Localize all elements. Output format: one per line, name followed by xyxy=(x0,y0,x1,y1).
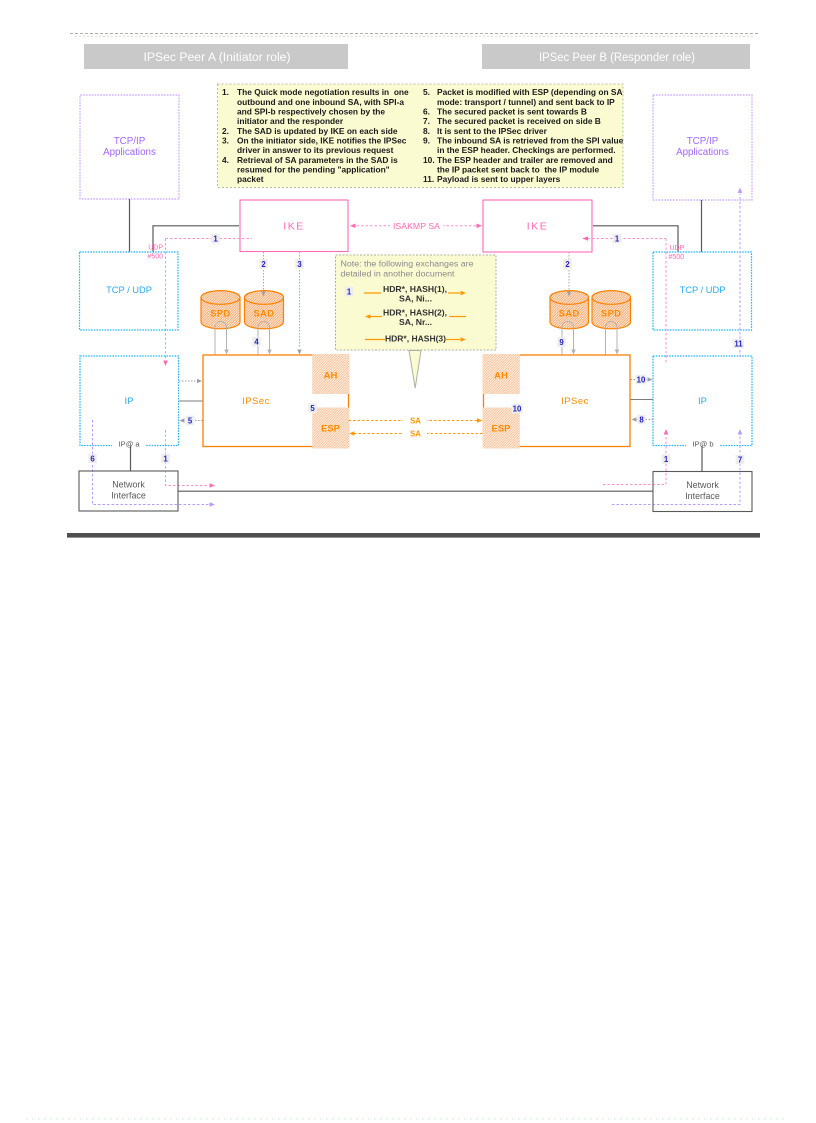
svg-text:10: 10 xyxy=(637,375,646,384)
svg-text:5.: 5. xyxy=(423,87,430,97)
svg-text:IP: IP xyxy=(125,396,134,407)
svg-text:1: 1 xyxy=(664,455,669,464)
svg-text:SA: SA xyxy=(410,417,421,426)
svg-text:SA, Ni...: SA, Ni... xyxy=(399,295,432,304)
svg-text:2.: 2. xyxy=(222,126,229,136)
svg-text:SAD: SAD xyxy=(254,309,275,319)
svg-text:HDR*, HASH(1),: HDR*, HASH(1), xyxy=(383,285,447,294)
svg-text:SAD: SAD xyxy=(559,309,580,319)
svg-text:resumed for the pending "appli: resumed for the pending "application" xyxy=(237,165,390,175)
svg-text:in the ESP header. Checkings a: in the ESP header. Checkings are perform… xyxy=(437,145,616,155)
svg-text:Payload is sent to upper layer: Payload is sent to upper layers xyxy=(437,174,561,184)
svg-text:9.: 9. xyxy=(423,136,430,146)
svg-text:packet: packet xyxy=(237,174,264,184)
svg-text:8.: 8. xyxy=(423,126,430,136)
svg-text:outbound and one inbound SA, w: outbound and one inbound SA, with SPI-a xyxy=(237,97,404,107)
svg-text:The secured packet is received: The secured packet is received on side B xyxy=(437,116,601,126)
svg-text:IPSec Peer B (Responder role): IPSec Peer B (Responder role) xyxy=(539,52,695,64)
svg-text:10.: 10. xyxy=(423,155,435,165)
svg-text:4: 4 xyxy=(254,337,259,346)
svg-text:11.: 11. xyxy=(423,174,434,184)
svg-text:HDR*, HASH(3): HDR*, HASH(3) xyxy=(385,335,446,344)
svg-text:1: 1 xyxy=(213,234,218,243)
svg-text:IPSec Peer A (Initiator role): IPSec Peer A (Initiator role) xyxy=(144,52,291,64)
svg-text:The Quick mode negotiation res: The Quick mode negotiation results in on… xyxy=(237,87,409,97)
svg-text:SA: SA xyxy=(410,430,421,439)
svg-text:TCP/IP: TCP/IP xyxy=(114,136,146,147)
svg-text:Note: the following exchanges: Note: the following exchanges are xyxy=(341,260,475,269)
svg-text:10: 10 xyxy=(513,404,522,413)
svg-text:Applications: Applications xyxy=(103,147,156,158)
svg-text:It is sent to the IPSec driver: It is sent to the IPSec driver xyxy=(437,126,548,136)
svg-text:The ESP header and trailer are: The ESP header and trailer are removed a… xyxy=(437,155,613,165)
svg-text:Retrieval of SA parameters in: Retrieval of SA parameters in the SAD is xyxy=(237,155,398,165)
svg-text:AH: AH xyxy=(494,371,508,382)
svg-text:3: 3 xyxy=(297,260,302,269)
svg-text:8: 8 xyxy=(639,415,644,424)
svg-text:ESP: ESP xyxy=(321,424,341,435)
svg-text:HDR*, HASH(2),: HDR*, HASH(2), xyxy=(383,309,447,318)
svg-text:9: 9 xyxy=(559,338,564,347)
svg-text:7: 7 xyxy=(738,455,742,464)
svg-text:IP@ a: IP@ a xyxy=(118,440,140,449)
svg-text:5: 5 xyxy=(310,404,315,413)
svg-text:and SPI-b respectively chosen: and SPI-b respectively chosen by the xyxy=(237,107,385,117)
svg-text:5: 5 xyxy=(188,416,193,425)
svg-text:driver in answer to its previo: driver in answer to its previous request xyxy=(237,145,394,155)
svg-text:detailed in another document: detailed in another document xyxy=(341,270,456,279)
svg-text:SPD: SPD xyxy=(601,309,621,319)
svg-text:2: 2 xyxy=(565,260,570,269)
svg-text:6.: 6. xyxy=(423,107,430,117)
svg-text:SA, Nr...: SA, Nr... xyxy=(399,318,432,327)
svg-text:AH: AH xyxy=(324,371,338,382)
svg-text:Interface: Interface xyxy=(111,491,146,501)
svg-text:The SAD is updated by IKE on e: The SAD is updated by IKE on each side xyxy=(237,126,398,136)
svg-text:Applications: Applications xyxy=(676,147,729,158)
svg-text:TCP/IP: TCP/IP xyxy=(687,136,719,147)
svg-text:6: 6 xyxy=(90,454,95,463)
svg-text:7.: 7. xyxy=(423,116,430,126)
svg-text:IP@ b: IP@ b xyxy=(692,440,713,449)
svg-text:ESP: ESP xyxy=(491,424,511,435)
svg-text:Packet is modified with ESP (d: Packet is modified with ESP (depending o… xyxy=(437,87,623,97)
svg-text:initiator and the responder: initiator and the responder xyxy=(237,116,344,126)
svg-text:3.: 3. xyxy=(222,136,229,146)
svg-text:TCP / UDP: TCP / UDP xyxy=(680,285,726,295)
svg-text:IP: IP xyxy=(698,396,707,407)
svg-text:IKE: IKE xyxy=(527,221,548,233)
svg-text:ISAKMP SA: ISAKMP SA xyxy=(393,222,441,231)
svg-text:4.: 4. xyxy=(222,155,229,165)
svg-text:IKE: IKE xyxy=(283,221,304,233)
svg-text:Network: Network xyxy=(112,480,145,490)
svg-text:1: 1 xyxy=(615,234,620,243)
svg-text:#500: #500 xyxy=(669,254,685,261)
svg-text:1: 1 xyxy=(163,454,168,463)
svg-text:TCP / UDP: TCP / UDP xyxy=(106,285,152,295)
svg-text:Network: Network xyxy=(686,480,719,490)
svg-text:Interface: Interface xyxy=(685,491,720,501)
svg-text:mode: transport / tunnel) and: mode: transport / tunnel) and sent back … xyxy=(437,97,615,107)
svg-text:The inbound SA is retrieved fr: The inbound SA is retrieved from the SPI… xyxy=(437,136,624,146)
svg-text:UDP: UDP xyxy=(148,245,163,252)
svg-text:11: 11 xyxy=(734,339,743,348)
svg-text:UDP: UDP xyxy=(670,245,685,252)
svg-text:1.: 1. xyxy=(222,87,229,97)
svg-text:the IP packet sent back to th: the IP packet sent back to the IP module xyxy=(437,165,599,175)
svg-text:The secured packet is sent tow: The secured packet is sent towards B xyxy=(437,107,587,117)
svg-text:IPSec: IPSec xyxy=(242,396,270,407)
svg-text:On the initiator side, IKE not: On the initiator side, IKE notifies the … xyxy=(237,136,407,146)
svg-text:1: 1 xyxy=(347,287,352,296)
svg-text:2: 2 xyxy=(261,260,266,269)
svg-text:SPD: SPD xyxy=(210,309,230,319)
svg-text:#500: #500 xyxy=(147,254,163,261)
svg-text:IPSec: IPSec xyxy=(561,396,589,407)
